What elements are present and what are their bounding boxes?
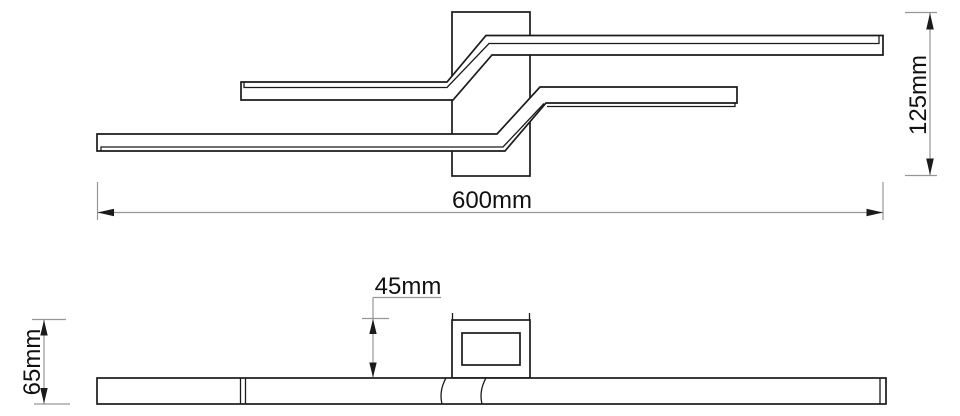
dim-label-total-height: 65mm [19, 329, 46, 396]
dimension-canopy-height-45mm: 45mm [362, 273, 441, 378]
top-view-drawing: 600mm 125mm [97, 12, 937, 220]
arrowhead-right-icon [867, 209, 884, 217]
dimension-total-height-65mm: 65mm [19, 320, 70, 405]
dimension-width-600mm: 600mm [98, 182, 884, 220]
mounting-box [452, 313, 530, 378]
arrowhead-down-icon [369, 363, 376, 378]
mounting-box-outline [452, 320, 530, 378]
arrowhead-down-icon [926, 159, 934, 176]
light-strip-upper-edge-line [244, 36, 879, 88]
dim-label-canopy-height: 45mm [375, 273, 442, 300]
light-bar-profile [97, 378, 886, 404]
arrowhead-up-icon [369, 319, 376, 334]
drawing-canvas: 600mm 125mm [0, 0, 960, 416]
arrowhead-up-icon [926, 13, 934, 30]
dimension-depth-125mm: 125mm [905, 13, 937, 176]
side-view-drawing: 45mm 65mm [19, 273, 886, 404]
light-bar-outline [97, 378, 886, 404]
dim-label-depth: 125mm [905, 55, 932, 135]
dim-label-width: 600mm [452, 187, 532, 214]
fixture-dimension-drawing: 600mm 125mm [0, 0, 960, 416]
arrowhead-left-icon [98, 209, 115, 217]
